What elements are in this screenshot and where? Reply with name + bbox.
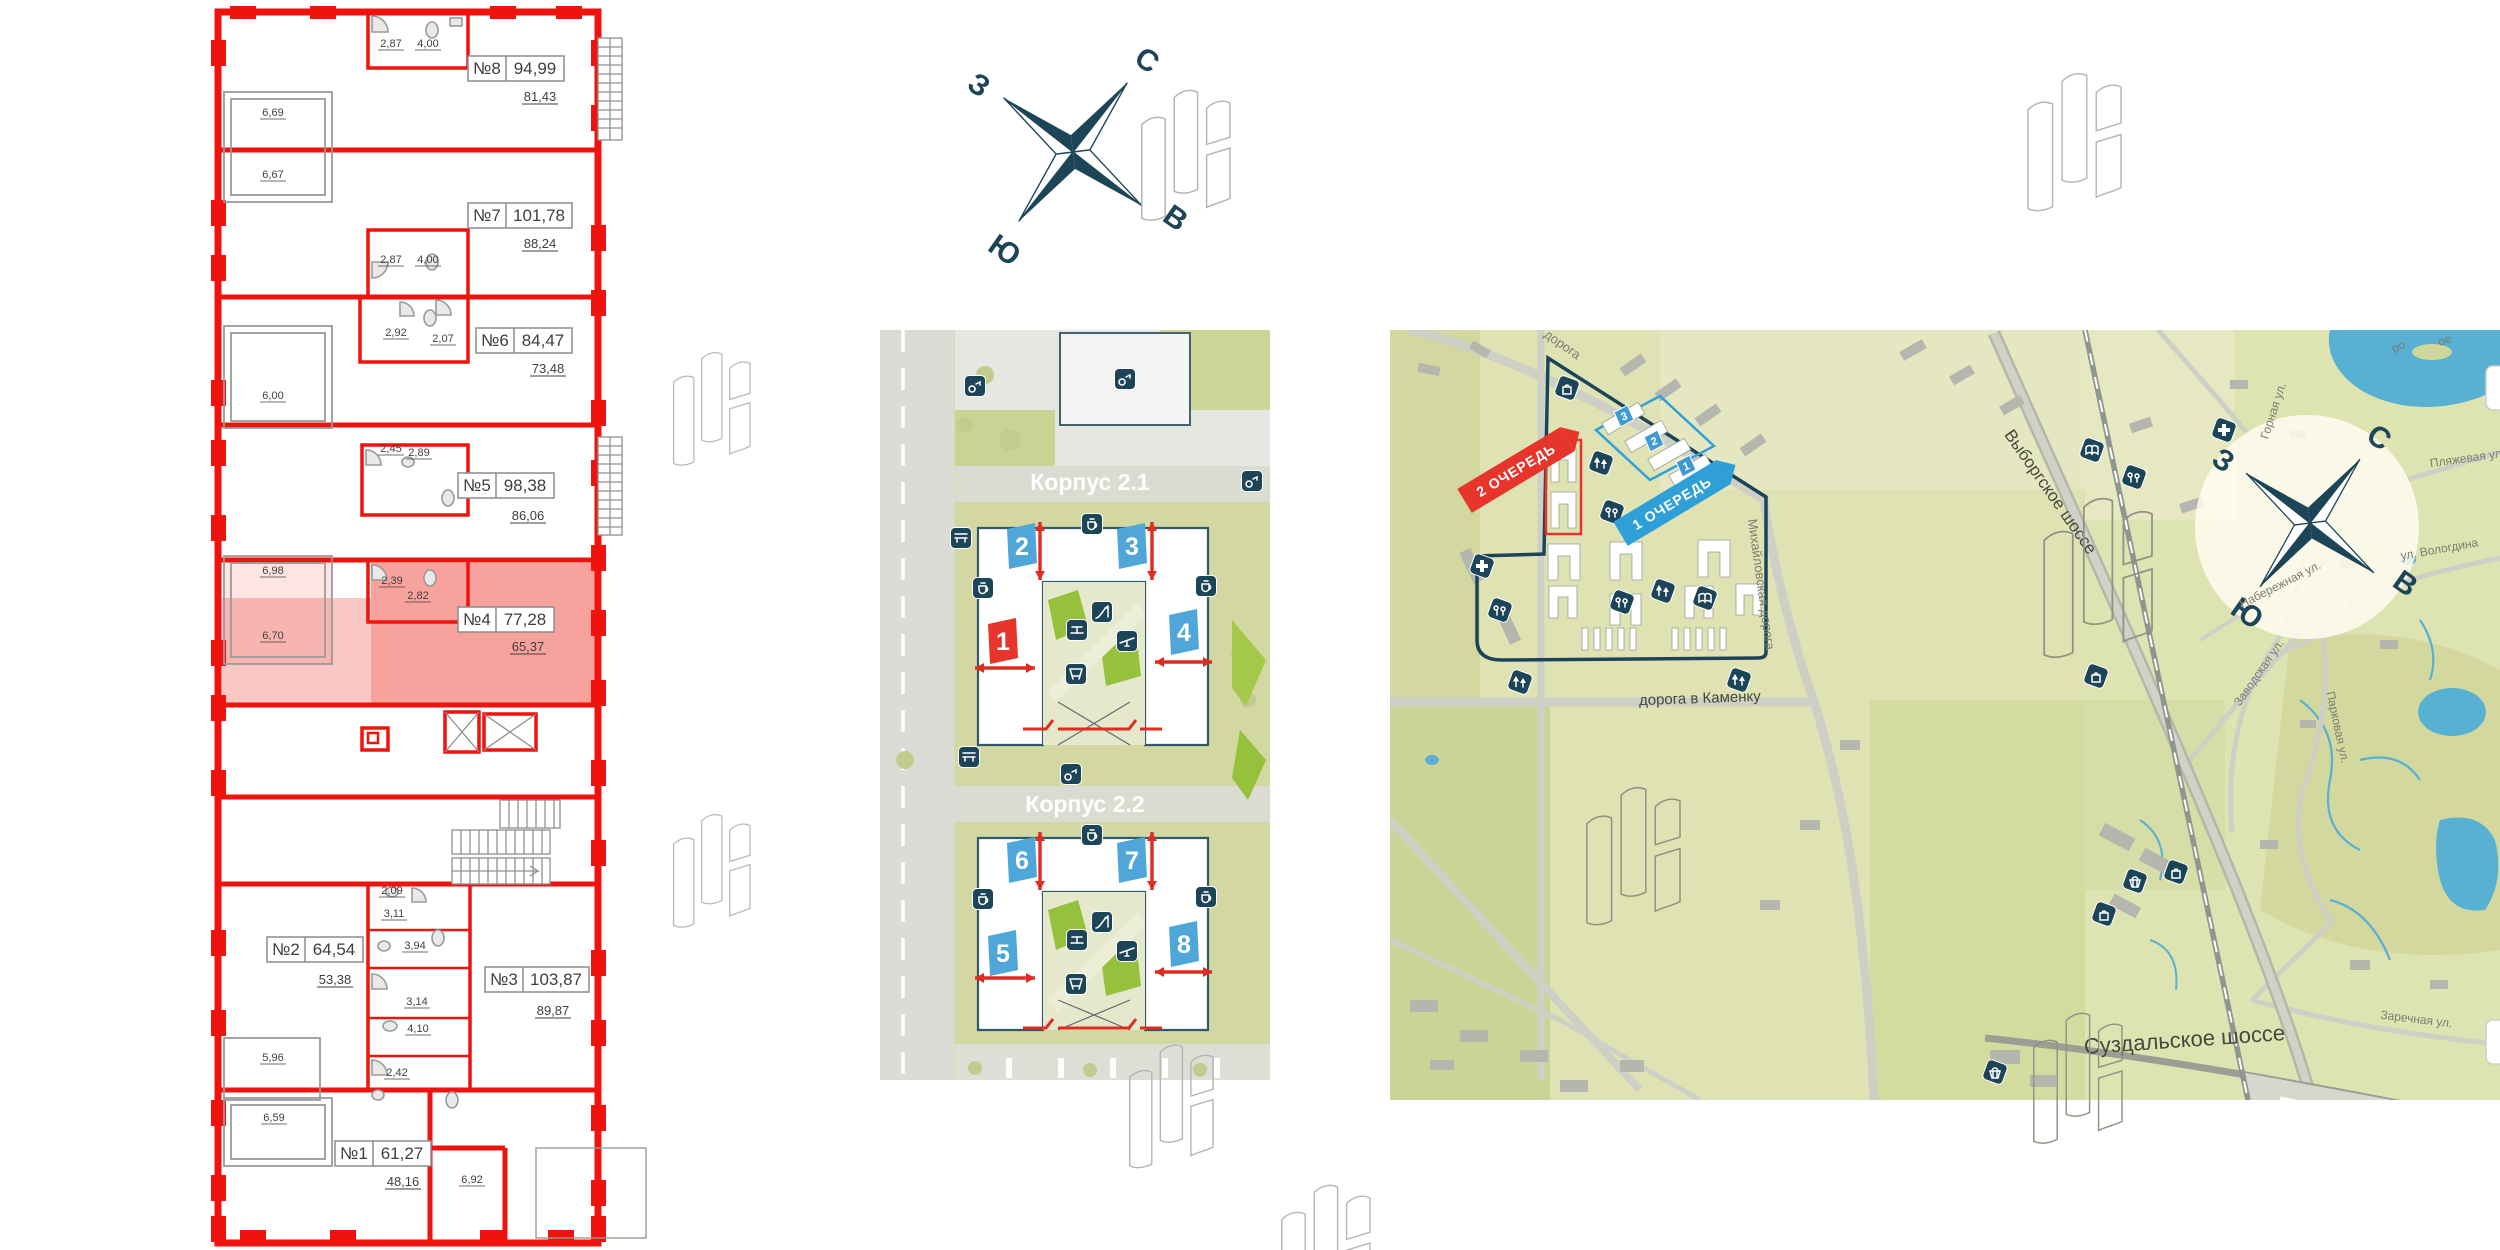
- unit-area-below: 48,16: [387, 1174, 420, 1189]
- dimension-label: 2,92: [383, 327, 409, 339]
- unit-area: 103,87: [530, 970, 582, 989]
- unit-number: №8: [473, 59, 501, 78]
- svg-text:4,00: 4,00: [417, 38, 438, 50]
- unit-area-below: 89,87: [537, 1003, 570, 1018]
- dimension-label: 2,07: [430, 333, 456, 345]
- svg-text:6,59: 6,59: [263, 1112, 284, 1124]
- building-marker-4[interactable]: 4: [1169, 609, 1199, 655]
- building-marker-2[interactable]: 2: [1007, 523, 1037, 569]
- svg-text:2,89: 2,89: [408, 447, 429, 459]
- bathroom-block: [360, 12, 470, 1090]
- building-marker-1[interactable]: 1: [988, 618, 1018, 664]
- unit-area: 94,99: [514, 59, 557, 78]
- dimension-label: 6,70: [260, 630, 286, 642]
- seesaw-poi-icon: [1117, 631, 1138, 652]
- svg-text:5: 5: [996, 940, 1010, 968]
- unit-area: 61,27: [381, 1144, 424, 1163]
- svg-text:3,11: 3,11: [384, 908, 405, 920]
- dimension-label: 4,10: [405, 1023, 431, 1035]
- unit-number: №1: [340, 1144, 368, 1163]
- unit-area: 84,47: [522, 331, 565, 350]
- cup-poi-icon: [973, 578, 994, 599]
- unit-label-№3[interactable]: №3103,8789,87: [485, 967, 589, 1018]
- building-marker-8[interactable]: 8: [1169, 921, 1199, 967]
- unit-label-№1[interactable]: №161,2748,16: [335, 1141, 431, 1189]
- dimension-label: 2,45: [378, 443, 404, 455]
- unit-area-below: 53,38: [319, 972, 352, 987]
- cup-poi-icon: [1082, 825, 1103, 846]
- unit-number: №7: [473, 206, 501, 225]
- cup-poi-icon: [1082, 514, 1103, 535]
- svg-text:4: 4: [1177, 619, 1191, 647]
- korpus-2-1-label: Корпус 2.1: [1030, 469, 1150, 495]
- building-marker-7[interactable]: 7: [1117, 837, 1147, 883]
- dimension-label: 6,59: [261, 1112, 287, 1124]
- dimension-label: 6,98: [260, 565, 286, 577]
- dimension-label: 6,69: [260, 107, 286, 119]
- dimension-label: 2,09: [379, 885, 405, 897]
- unit-label-№2[interactable]: №264,5453,38: [267, 937, 363, 987]
- korpus-2-2-label: Корпус 2.2: [1025, 791, 1144, 817]
- swing-poi-icon: [1066, 664, 1087, 685]
- dimension-label: 2,39: [379, 575, 405, 587]
- svg-text:6: 6: [1015, 847, 1029, 875]
- svg-text:6,70: 6,70: [262, 630, 283, 642]
- bench-poi-icon: [951, 528, 972, 549]
- dimension-label: 5,96: [260, 1052, 286, 1064]
- svg-text:2,82: 2,82: [407, 590, 428, 602]
- unit-number: №2: [272, 940, 300, 959]
- svg-text:3,14: 3,14: [406, 996, 427, 1008]
- unit-number: №5: [463, 476, 491, 495]
- bench-poi-icon: [959, 747, 980, 768]
- cup-poi-icon: [1196, 576, 1217, 597]
- seesaw-poi-icon: [1117, 941, 1138, 962]
- svg-text:6,92: 6,92: [461, 1174, 482, 1186]
- svg-text:2,07: 2,07: [432, 333, 453, 345]
- elevator-shaft: [362, 712, 536, 752]
- dimension-label: 2,82: [405, 590, 431, 602]
- dimension-label: 3,14: [404, 996, 430, 1008]
- unit-area-below: 73,48: [532, 361, 565, 376]
- svg-text:3: 3: [1125, 533, 1139, 561]
- dog-poi-icon: [1115, 369, 1136, 390]
- svg-text:6,67: 6,67: [262, 169, 283, 181]
- svg-text:4,10: 4,10: [407, 1023, 428, 1035]
- dimension-label: 2,87: [378, 254, 404, 266]
- location-map: СЗВЮ дорогаМихайловская дорогадорога в К…: [1390, 326, 2500, 1168]
- svg-text:6,69: 6,69: [262, 107, 283, 119]
- svg-text:2,45: 2,45: [380, 443, 401, 455]
- svg-text:6,00: 6,00: [262, 390, 283, 402]
- poi-icon-partial: [2486, 1020, 2500, 1064]
- svg-text:2,87: 2,87: [380, 38, 401, 50]
- building-marker-3[interactable]: 3: [1117, 523, 1147, 569]
- slide-poi-icon: [1092, 602, 1113, 623]
- dimension-label: 2,42: [384, 1067, 410, 1079]
- svg-text:3,94: 3,94: [404, 940, 425, 952]
- poi-icon-partial: [2486, 366, 2500, 410]
- unit-label-№5[interactable]: №598,3886,06: [458, 473, 554, 523]
- cup-poi-icon: [973, 889, 994, 910]
- unit-label-№8[interactable]: №894,9981,43: [468, 56, 564, 104]
- svg-text:8: 8: [1177, 931, 1191, 959]
- svg-text:6,98: 6,98: [262, 565, 283, 577]
- table-poi-icon: [1067, 930, 1088, 951]
- svg-text:4,00: 4,00: [417, 254, 438, 266]
- svg-text:2,42: 2,42: [386, 1067, 407, 1079]
- dimension-label: 6,67: [260, 169, 286, 181]
- unit-area: 98,38: [504, 476, 547, 495]
- unit-number: №4: [463, 610, 491, 629]
- unit-area-below: 88,24: [524, 236, 557, 251]
- dog-poi-icon: [1242, 471, 1263, 492]
- svg-text:2,92: 2,92: [385, 327, 406, 339]
- unit-number: №6: [481, 331, 509, 350]
- dog-poi-icon: [965, 376, 986, 397]
- swing-poi-icon: [1066, 974, 1087, 995]
- scene: №894,9981,43№7101,7888,24№684,4773,48№59…: [0, 0, 2500, 1250]
- dimension-label: 2,87: [378, 38, 404, 50]
- dimension-label: 3,94: [402, 940, 428, 952]
- dimension-label: 2,89: [406, 447, 432, 459]
- screenshot-canvas: №894,9981,43№7101,7888,24№684,4773,48№59…: [0, 0, 2500, 1250]
- dimension-label: 4,00: [415, 254, 441, 266]
- dimension-label: 6,92: [459, 1174, 485, 1186]
- svg-text:2,09: 2,09: [381, 885, 402, 897]
- compass-north: С: [1129, 41, 1166, 80]
- svg-text:2,39: 2,39: [381, 575, 402, 587]
- unit-area: 101,78: [513, 206, 565, 225]
- site-plan: 12345678 Корпус 2.1Корпус 2.2: [880, 330, 1270, 1080]
- unit-area-below: 65,37: [512, 639, 545, 654]
- floor-plan: №894,9981,43№7101,7888,24№684,4773,48№59…: [211, 6, 646, 1243]
- table-poi-icon: [1067, 620, 1088, 641]
- building-marker-5[interactable]: 5: [988, 930, 1018, 976]
- dog-poi-icon: [1061, 764, 1082, 785]
- unit-label-№7[interactable]: №7101,7888,24: [468, 203, 572, 251]
- svg-text:2: 2: [1015, 533, 1029, 561]
- unit-area: 77,28: [504, 610, 547, 629]
- unit-area-below: 81,43: [524, 89, 557, 104]
- dimension-label: 6,00: [260, 390, 286, 402]
- unit-area: 64,54: [313, 940, 356, 959]
- building-marker-6[interactable]: 6: [1007, 837, 1037, 883]
- unit-area-below: 86,06: [512, 508, 545, 523]
- cup-poi-icon: [1196, 887, 1217, 908]
- dimension-label: 4,00: [415, 38, 441, 50]
- svg-text:2,87: 2,87: [380, 254, 401, 266]
- slide-poi-icon: [1092, 912, 1113, 933]
- svg-text:5,96: 5,96: [262, 1052, 283, 1064]
- compass-rose: СЗВЮ: [949, 28, 1196, 275]
- compass-south: Ю: [982, 228, 1026, 273]
- compass-west: З: [962, 66, 996, 104]
- svg-text:7: 7: [1125, 847, 1139, 875]
- svg-text:1: 1: [996, 628, 1010, 656]
- dimension-label: 3,11: [381, 908, 407, 920]
- unit-number: №3: [490, 970, 518, 989]
- unit-label-№6[interactable]: №684,4773,48: [476, 328, 572, 376]
